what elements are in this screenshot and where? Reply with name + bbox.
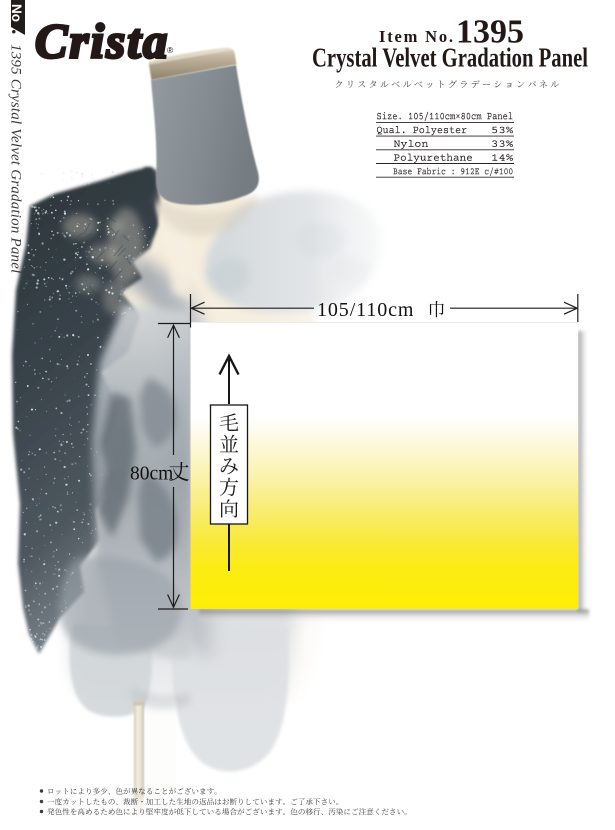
svg-text:No: No [9, 4, 24, 22]
svg-text:105/110cm: 105/110cm [317, 299, 414, 321]
svg-text:Crystal Velvet Gradation Panel: Crystal Velvet Gradation Panel [312, 43, 588, 73]
svg-text:1395 Crystal Velvet Gradation: 1395 Crystal Velvet Gradation Panel [8, 44, 24, 273]
svg-text:Crista: Crista [35, 16, 170, 69]
svg-text:80cm: 80cm [130, 464, 173, 485]
svg-text:®: ® [167, 45, 174, 55]
